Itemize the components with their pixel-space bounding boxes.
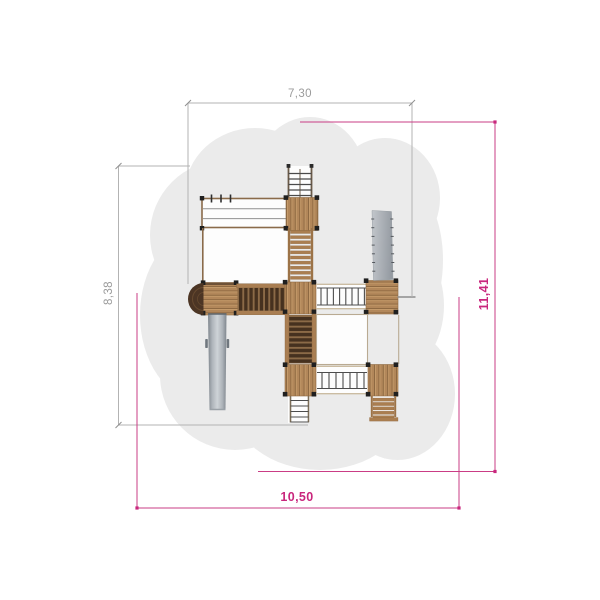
right-lower-platform — [366, 362, 398, 396]
plan-canvas: 7,30 8,38 11,41 10,50 — [0, 0, 600, 600]
central-platform — [283, 280, 316, 314]
left-platform — [201, 280, 239, 315]
round-platform — [188, 283, 204, 315]
lower-central-platform — [283, 362, 316, 396]
dim-label-equipment-height: 8,38 — [102, 263, 116, 323]
climbing-ramp — [371, 211, 394, 281]
dim-label-safety-width: 10,50 — [267, 490, 327, 504]
dim-label-safety-height: 11,41 — [477, 264, 491, 324]
slide — [205, 314, 229, 410]
upper-platform — [284, 195, 320, 230]
wooden-stairs — [289, 228, 312, 282]
access-steps — [370, 396, 399, 421]
clatter-bridge-horizontal — [237, 284, 287, 315]
clatter-bridge-vertical — [285, 314, 316, 364]
dim-label-equipment-width: 7,30 — [270, 87, 330, 101]
right-upper-platform — [364, 278, 398, 314]
